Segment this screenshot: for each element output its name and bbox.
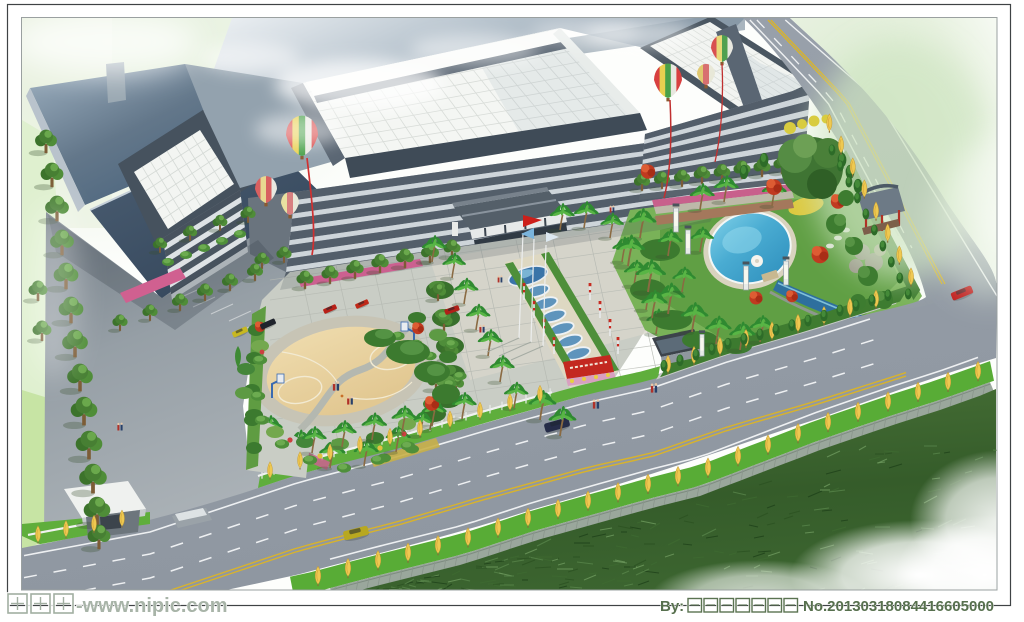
svg-text:No.20130318084416605000: No.20130318084416605000 xyxy=(803,598,994,615)
svg-text:-www.nipic.com: -www.nipic.com xyxy=(76,595,228,617)
svg-text:By:: By: xyxy=(660,598,684,615)
